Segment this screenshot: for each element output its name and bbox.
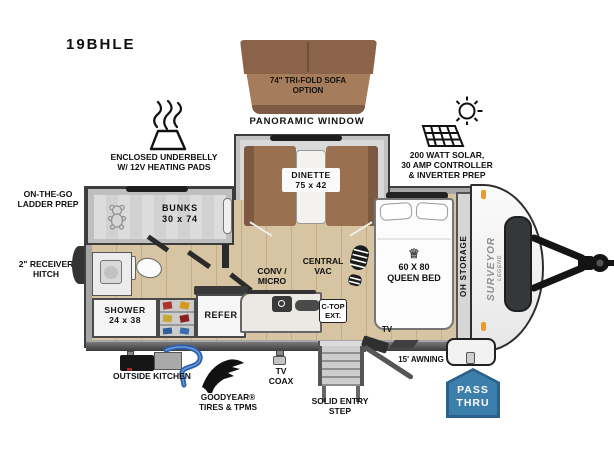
pillow [415,202,448,221]
solar-label: 200 WATT SOLAR, 30 AMP CONTROLLER & INVE… [389,150,505,181]
awning-label: 15' AWNING [392,355,450,365]
outside-kitchen-label: OUTSIDE KITCHEN [96,371,208,381]
teddy-bear-icon [106,203,128,230]
tongue-hitch-icon [532,232,614,294]
underbelly-label: ENCLOSED UNDERBELLY W/ 12V HEATING PADS [103,152,225,172]
goodyear-wingfoot-icon [200,355,246,395]
dinette-label: DINETTE 75 x 42 [282,168,340,192]
entry-steps [318,346,364,386]
floorplan-19bhle: 19BHLE 74" TRI-FOLD SOFA OPTION PANORAMI… [0,0,614,460]
clothes-item [163,315,173,323]
clearance-light [481,190,486,199]
queen-bed-label: 60 X 80 QUEEN BED [379,262,449,284]
vanity-basin [104,266,118,279]
shower-label: SHOWER 24 x 38 [94,305,156,325]
wardrobe-shelf [160,311,194,313]
sofa-base [252,105,365,114]
tv-label: TV [376,325,398,335]
bunks-label: BUNKS 30 x 74 [140,203,220,225]
clearance-light [481,322,486,331]
bunks-cabinet [223,198,232,234]
pillow [379,202,412,221]
heating-pads-icon [138,100,190,152]
sofa-back-seam [307,42,309,72]
clothes-item [163,301,173,309]
tv-coax-connector-icon [273,356,286,365]
conv-micro-label: CONV / MICRO [244,266,300,286]
clothes-item [179,301,189,309]
solid-entry-step-label: SOLID ENTRY STEP [298,396,382,416]
ladder-prep-label: ON-THE-GO LADDER PREP [10,189,86,209]
solar-panel-icon [414,96,488,150]
ctop-ext-label: C-TOP EXT. [319,299,347,323]
crown-icon: ♕ [402,246,426,262]
pass-thru-latch [466,352,475,364]
clothes-item [180,327,190,334]
wardrobe-shelf [160,324,194,326]
outside-kitchen-grill [120,355,154,371]
brand-secondary: LEGEND [497,238,505,298]
model-number: 19BHLE [66,36,146,54]
bed-fold-line [377,238,451,240]
panoramic-window-label: PANORAMIC WINDOW [232,116,382,127]
front-cap-window [504,216,532,312]
tv-coax-label: TV COAX [256,366,306,386]
clothes-item [163,328,173,335]
bunks-window [126,186,188,192]
stove-burner [278,300,285,307]
sink-cover [295,300,320,311]
wall-stub [222,244,229,268]
sofa-option-label: 74" TRI-FOLD SOFA OPTION [242,76,374,95]
goodyear-label: GOODYEAR® TIRES & TPMS [184,393,272,413]
dinette-window [270,135,342,141]
pass-thru-label: PASS THRU [446,384,500,409]
counter-backsplash [246,290,316,294]
refer-label: REFER [198,310,244,321]
